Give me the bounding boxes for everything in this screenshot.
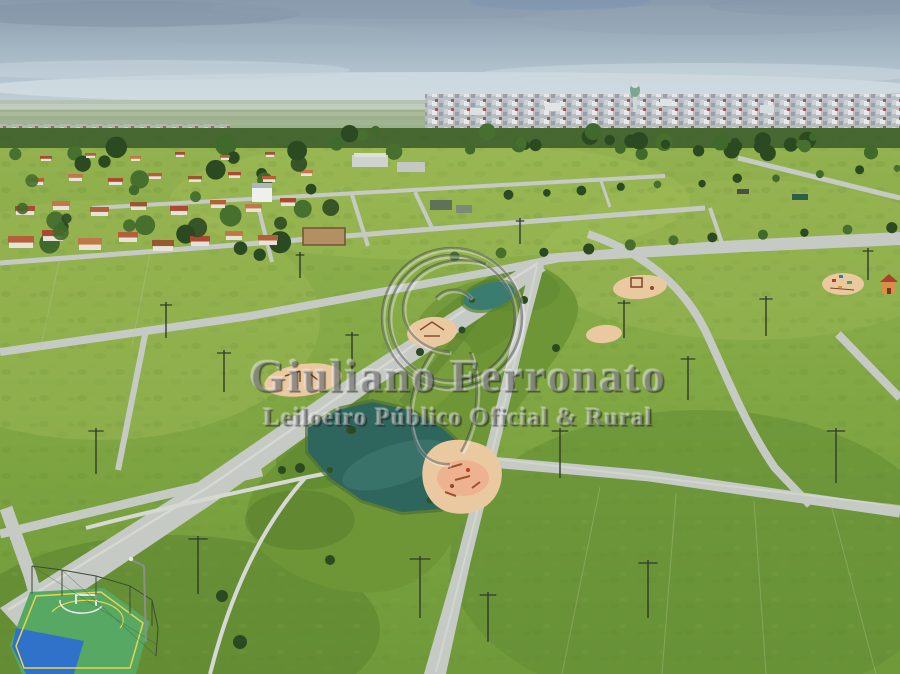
house-roof bbox=[130, 156, 141, 159]
tree bbox=[583, 243, 594, 254]
house-roof bbox=[228, 172, 241, 175]
tree bbox=[755, 132, 771, 148]
house-roof bbox=[40, 156, 52, 159]
tree bbox=[529, 139, 541, 151]
house-roof bbox=[188, 176, 202, 179]
tree bbox=[25, 174, 38, 187]
house bbox=[220, 155, 230, 160]
playground-equipment bbox=[822, 273, 864, 295]
house-roof bbox=[152, 240, 174, 246]
house-roof bbox=[52, 201, 70, 206]
tree bbox=[698, 180, 705, 187]
tree bbox=[800, 228, 808, 236]
house-roof bbox=[130, 202, 147, 206]
tree bbox=[341, 125, 358, 142]
house bbox=[148, 173, 162, 179]
tree bbox=[190, 191, 201, 202]
tree bbox=[864, 145, 878, 159]
tree bbox=[371, 126, 380, 135]
house bbox=[78, 238, 102, 250]
house bbox=[210, 200, 226, 208]
house-roof bbox=[78, 238, 102, 245]
house-roof bbox=[148, 173, 162, 176]
house-roof bbox=[108, 178, 123, 182]
tree bbox=[9, 148, 21, 160]
tree bbox=[479, 123, 496, 140]
house bbox=[130, 156, 141, 161]
house bbox=[228, 172, 241, 178]
tree bbox=[539, 248, 548, 257]
tree bbox=[17, 203, 29, 215]
house-roof bbox=[68, 174, 83, 178]
house bbox=[190, 236, 210, 246]
house bbox=[108, 178, 123, 185]
tree bbox=[306, 184, 317, 195]
house-roof bbox=[118, 232, 138, 238]
tree bbox=[220, 205, 242, 227]
house bbox=[258, 235, 278, 245]
tree bbox=[465, 144, 475, 154]
tree bbox=[294, 200, 312, 218]
tree bbox=[234, 241, 248, 255]
tree bbox=[758, 230, 768, 240]
house-roof bbox=[8, 236, 34, 243]
tree bbox=[98, 155, 110, 167]
house-roof bbox=[280, 198, 296, 202]
tree bbox=[135, 215, 155, 235]
tree bbox=[772, 174, 780, 182]
tree bbox=[129, 185, 140, 196]
house bbox=[225, 231, 243, 240]
tree bbox=[605, 135, 615, 145]
house bbox=[175, 152, 185, 157]
tree bbox=[624, 134, 637, 147]
tree bbox=[625, 239, 636, 250]
house-roof bbox=[265, 152, 275, 155]
tree bbox=[731, 138, 740, 147]
house bbox=[280, 198, 296, 206]
house bbox=[170, 206, 188, 215]
house bbox=[90, 207, 109, 216]
house-roof bbox=[245, 204, 262, 208]
tree bbox=[617, 183, 625, 191]
tree bbox=[357, 130, 368, 141]
tree bbox=[713, 135, 729, 151]
house bbox=[152, 240, 174, 251]
house-roof bbox=[225, 231, 243, 236]
tree bbox=[62, 213, 72, 223]
tree bbox=[732, 173, 742, 183]
house-roof bbox=[85, 153, 96, 156]
bus bbox=[792, 194, 808, 200]
tree bbox=[206, 160, 226, 180]
tree bbox=[503, 190, 513, 200]
house bbox=[85, 153, 96, 158]
aerial-photo: Giuliano Ferronato Leiloeiro Público Ofi… bbox=[0, 0, 900, 674]
house-roof bbox=[262, 176, 276, 179]
house bbox=[68, 174, 83, 181]
house bbox=[118, 232, 138, 242]
tree bbox=[636, 148, 648, 160]
tree bbox=[254, 249, 266, 261]
house bbox=[130, 202, 147, 210]
tree bbox=[661, 140, 670, 149]
tree bbox=[188, 218, 208, 238]
tree bbox=[322, 199, 339, 216]
house-roof bbox=[220, 155, 230, 158]
tree bbox=[843, 225, 853, 235]
tree bbox=[707, 232, 717, 242]
tree bbox=[585, 123, 602, 140]
house bbox=[40, 156, 52, 161]
tree bbox=[668, 235, 678, 245]
scene-canvas bbox=[0, 0, 900, 674]
tree bbox=[516, 138, 527, 149]
tree bbox=[577, 186, 587, 196]
house bbox=[245, 204, 262, 212]
house-roof bbox=[175, 152, 185, 155]
tree bbox=[798, 140, 811, 153]
tree bbox=[654, 181, 662, 189]
tree bbox=[330, 137, 344, 151]
tree bbox=[615, 143, 626, 154]
truck bbox=[737, 189, 749, 194]
tree bbox=[886, 222, 897, 233]
tree bbox=[809, 133, 817, 141]
house bbox=[188, 176, 202, 182]
house-roof bbox=[170, 206, 188, 211]
tree bbox=[274, 217, 287, 230]
house bbox=[262, 176, 276, 182]
tree bbox=[123, 219, 136, 232]
tree bbox=[386, 143, 402, 159]
house bbox=[52, 201, 70, 210]
tree bbox=[496, 248, 507, 259]
tree bbox=[106, 137, 127, 158]
tree bbox=[816, 170, 824, 178]
house bbox=[8, 236, 34, 248]
house bbox=[265, 152, 275, 157]
tree bbox=[693, 145, 704, 156]
tree bbox=[855, 165, 864, 174]
house-roof bbox=[258, 235, 278, 241]
tree bbox=[291, 156, 307, 172]
house-roof bbox=[210, 200, 226, 204]
tree bbox=[784, 137, 798, 151]
tree bbox=[46, 211, 64, 229]
tree bbox=[543, 189, 551, 197]
house-roof bbox=[90, 207, 109, 212]
